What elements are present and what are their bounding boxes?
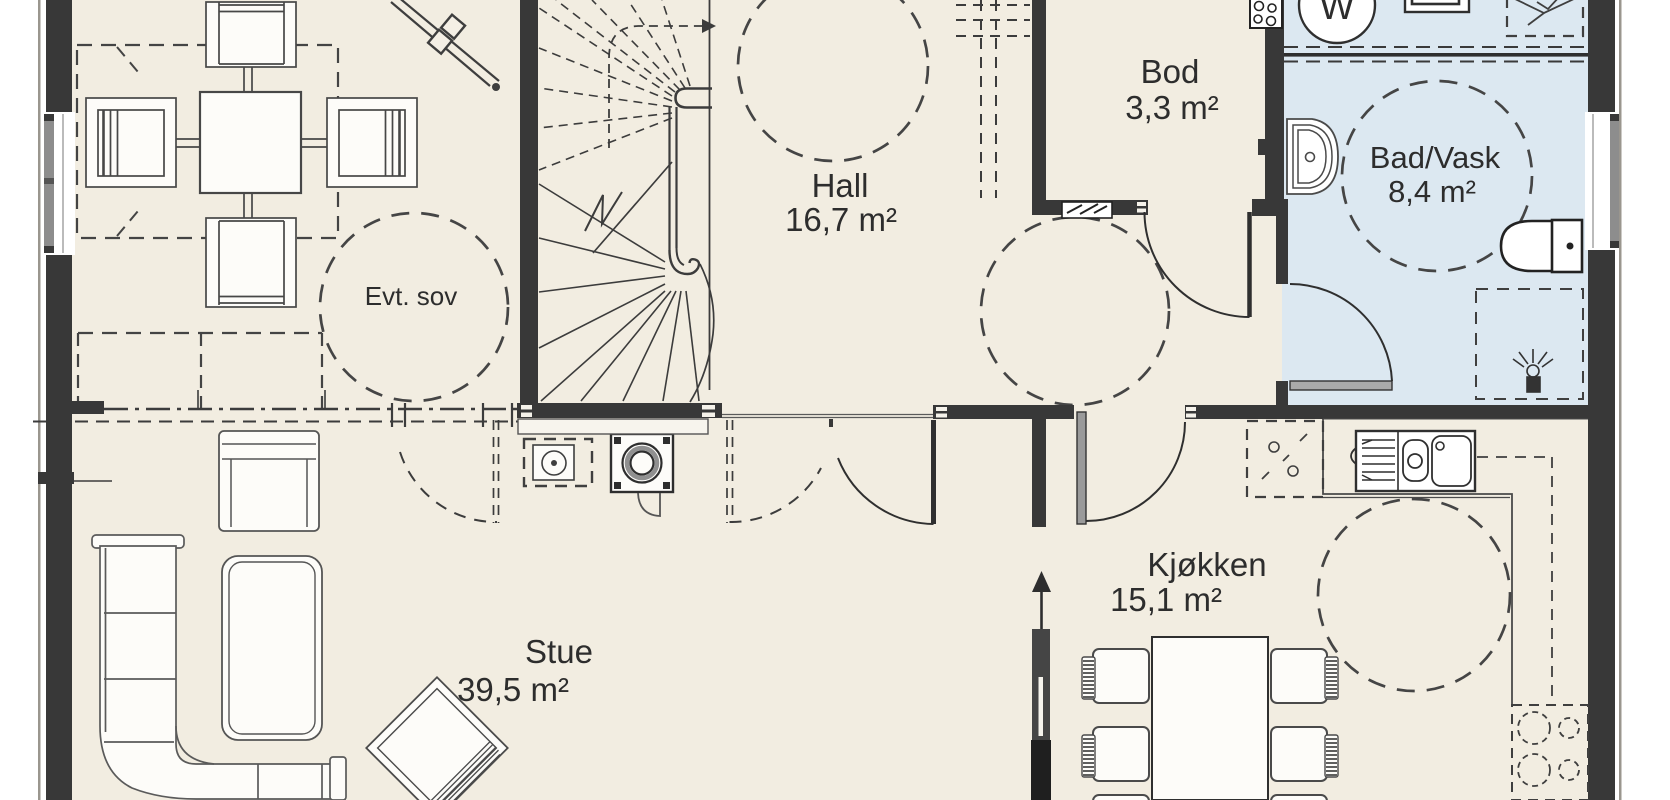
svg-text:Hall: Hall bbox=[812, 167, 869, 204]
svg-text:39,5 m²: 39,5 m² bbox=[457, 671, 569, 708]
svg-text:Stue: Stue bbox=[525, 633, 593, 670]
svg-text:Evt. sov: Evt. sov bbox=[365, 281, 457, 311]
svg-text:Kjøkken: Kjøkken bbox=[1147, 546, 1266, 583]
svg-text:8,4 m²: 8,4 m² bbox=[1388, 174, 1476, 209]
svg-text:15,1 m²: 15,1 m² bbox=[1110, 581, 1222, 618]
svg-text:W: W bbox=[1320, 0, 1355, 27]
svg-text:Bod: Bod bbox=[1141, 53, 1200, 90]
svg-text:16,7 m²: 16,7 m² bbox=[785, 201, 897, 238]
svg-text:3,3 m²: 3,3 m² bbox=[1125, 89, 1219, 126]
svg-text:Bad/Vask: Bad/Vask bbox=[1370, 140, 1501, 175]
